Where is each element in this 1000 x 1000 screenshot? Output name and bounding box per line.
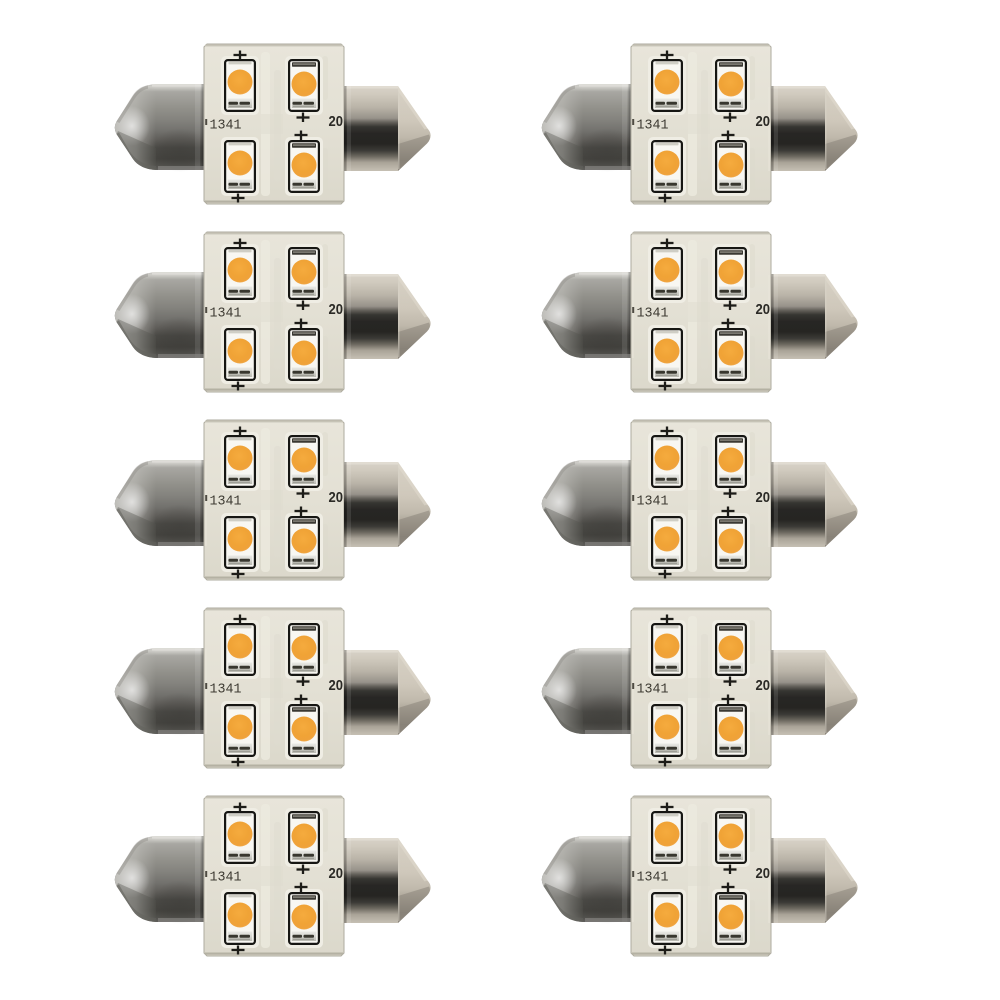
svg-text:1341: 1341 — [210, 683, 242, 698]
svg-text:20: 20 — [756, 489, 771, 506]
svg-text:1341: 1341 — [637, 307, 669, 322]
svg-text:1341: 1341 — [637, 871, 669, 886]
svg-text:1341: 1341 — [210, 871, 242, 886]
svg-text:1341: 1341 — [637, 495, 669, 510]
svg-text:20: 20 — [756, 677, 771, 694]
svg-text:20: 20 — [329, 301, 344, 318]
svg-text:1341: 1341 — [637, 683, 669, 698]
svg-text:1341: 1341 — [210, 119, 242, 134]
svg-text:1341: 1341 — [210, 307, 242, 322]
svg-text:1341: 1341 — [210, 495, 242, 510]
svg-text:20: 20 — [329, 865, 344, 882]
svg-text:20: 20 — [329, 677, 344, 694]
svg-text:20: 20 — [756, 113, 771, 130]
svg-text:20: 20 — [756, 301, 771, 318]
svg-text:20: 20 — [329, 489, 344, 506]
svg-text:20: 20 — [756, 865, 771, 882]
svg-text:20: 20 — [329, 113, 344, 130]
svg-text:1341: 1341 — [637, 119, 669, 134]
